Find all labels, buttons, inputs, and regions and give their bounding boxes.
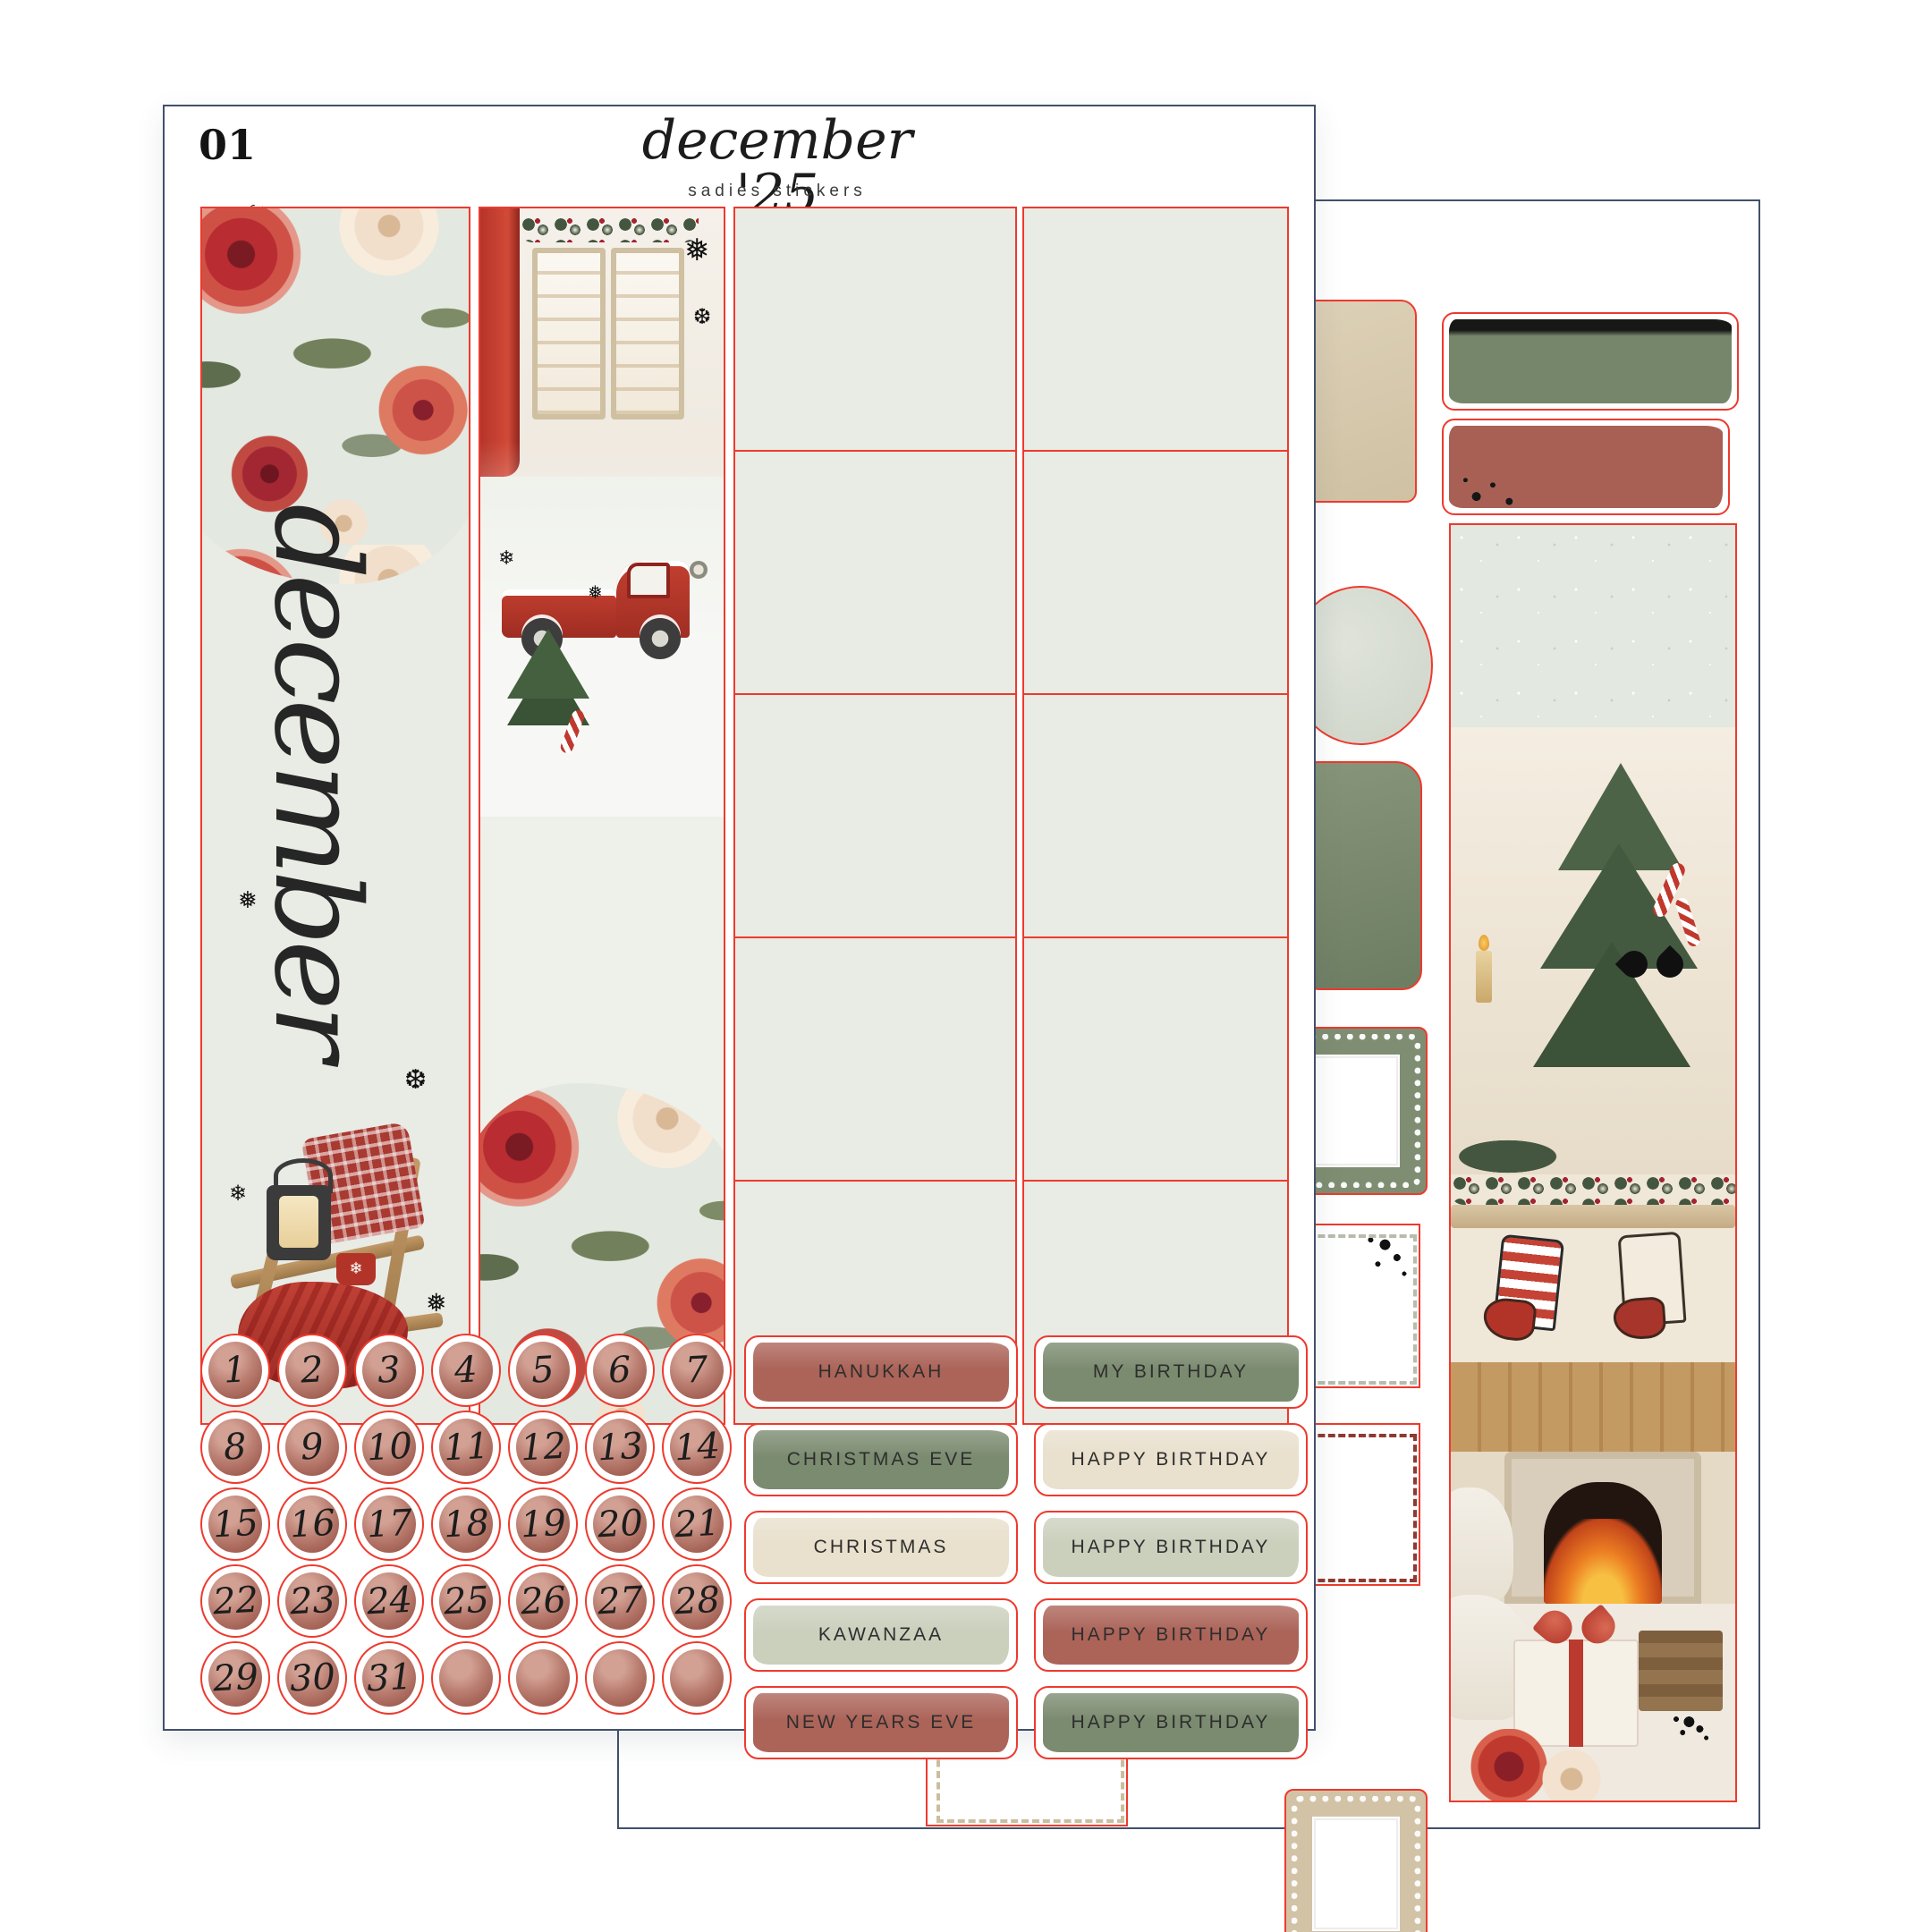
date-dot-sticker: 19 (508, 1487, 578, 1561)
date-dot-sticker: 25 (431, 1564, 501, 1638)
date-number: 29 (212, 1659, 259, 1698)
snowflake-icon: ❆ (404, 1067, 427, 1094)
date-dot-paint: 3 (362, 1342, 416, 1399)
date-dot-paint: 2 (285, 1342, 339, 1399)
washi-mantel-scene (1451, 1174, 1735, 1452)
date-dot-sticker: 15 (200, 1487, 270, 1561)
label-paint: HANUKKAH (753, 1343, 1009, 1402)
date-dot-paint: 20 (593, 1496, 647, 1553)
date-dot-paint: 30 (285, 1649, 339, 1707)
label-sticker: CHRISTMAS (744, 1511, 1018, 1584)
cream-rose-illustration (1531, 1743, 1612, 1802)
date-dot-sticker: 26 (508, 1564, 578, 1638)
green-brush-swatch-sticker (1442, 312, 1739, 411)
date-dot-paint: 6 (593, 1342, 647, 1399)
label-sticker: HAPPY BIRTHDAY (1034, 1598, 1308, 1672)
brown-gift-illustration (1639, 1631, 1723, 1711)
date-number: 31 (366, 1659, 413, 1698)
label-text: CHRISTMAS (814, 1537, 949, 1558)
date-number: 15 (212, 1505, 259, 1544)
sketch-border (1308, 1234, 1417, 1385)
tan-lace-frame-sticker (1284, 1789, 1428, 1932)
date-dot-paint: 29 (208, 1649, 262, 1707)
label-sticker: KAWANZAA (744, 1598, 1018, 1672)
date-dot-sticker: 17 (354, 1487, 424, 1561)
date-number: 4 (453, 1352, 479, 1388)
box-cut-lines (1024, 208, 1287, 1423)
date-dot-paint (516, 1649, 570, 1707)
date-dot-sticker: 6 (585, 1334, 655, 1407)
lace-frame-inner (1289, 1793, 1423, 1932)
date-dot-paint (593, 1649, 647, 1707)
date-number: 10 (366, 1428, 413, 1467)
date-dot-paint: 22 (208, 1572, 262, 1630)
shop-window (611, 248, 684, 419)
label-sticker: CHRISTMAS EVE (744, 1423, 1018, 1496)
date-dot-paint: 19 (516, 1496, 570, 1553)
date-dot-paint: 17 (362, 1496, 416, 1553)
rose-paint (1449, 426, 1723, 508)
date-number: 1 (223, 1352, 248, 1388)
date-dot-sticker: 9 (277, 1411, 347, 1484)
date-dot-sticker: 13 (585, 1411, 655, 1484)
label-sticker: HAPPY BIRTHDAY (1034, 1423, 1308, 1496)
snowflake-icon: ❅ (588, 584, 603, 602)
date-dot-sticker: 8 (200, 1411, 270, 1484)
date-number: 27 (597, 1582, 644, 1621)
date-number: 3 (377, 1352, 402, 1388)
stocking-sketch-illustration (1618, 1232, 1687, 1327)
candle-flame (1479, 935, 1489, 951)
sticker-kit-product-image: 01 B6 ESS. december '25 sadies stickers … (0, 0, 1932, 1932)
label-paint: CHRISTMAS EVE (753, 1430, 1009, 1489)
date-dots-grid: 1 2 3 4 (200, 1334, 728, 1713)
stocking-toe (1481, 1296, 1537, 1343)
date-number: 19 (520, 1505, 567, 1544)
sticker-sheet-front: 01 B6 ESS. december '25 sadies stickers … (163, 105, 1316, 1731)
date-dot-sticker: 16 (277, 1487, 347, 1561)
holiday-labels-column: HANUKKAH CHRISTMAS EVE CHRISTMAS (744, 1335, 1018, 1759)
date-dot-paint: 14 (670, 1419, 724, 1476)
candle-illustration (1476, 951, 1492, 1003)
washi-room-scene (1451, 727, 1735, 1174)
label-paint: KAWANZAA (753, 1606, 1009, 1665)
label-text: HAPPY BIRTHDAY (1072, 1712, 1271, 1733)
red-bow-illustration (1538, 1611, 1615, 1647)
date-dot-sticker: 28 (662, 1564, 732, 1638)
gift-ribbon (1569, 1640, 1583, 1747)
date-dot-sticker (508, 1641, 578, 1715)
label-paint: CHRISTMAS (753, 1518, 1009, 1577)
label-paint: NEW YEARS EVE (753, 1693, 1009, 1752)
label-text: HAPPY BIRTHDAY (1072, 1537, 1271, 1558)
date-number: 6 (607, 1352, 632, 1388)
date-dot-paint: 13 (593, 1419, 647, 1476)
date-number: 14 (674, 1428, 721, 1467)
date-number: 20 (597, 1505, 644, 1544)
date-dot-sticker: 31 (354, 1641, 424, 1715)
date-dot-paint: 23 (285, 1572, 339, 1630)
date-number: 5 (530, 1352, 555, 1388)
date-number: 22 (212, 1582, 259, 1621)
garland-illustration (1451, 1174, 1735, 1205)
date-dot-paint: 7 (670, 1342, 724, 1399)
label-paint: HAPPY BIRTHDAY (1043, 1430, 1299, 1489)
date-number: 30 (289, 1659, 336, 1698)
date-dot-sticker: 22 (200, 1564, 270, 1638)
date-dot-paint: 26 (516, 1572, 570, 1630)
label-text: NEW YEARS EVE (786, 1712, 977, 1733)
label-text: HAPPY BIRTHDAY (1072, 1624, 1271, 1646)
date-dot-paint: 12 (516, 1419, 570, 1476)
date-dot-paint: 4 (439, 1342, 493, 1399)
snowflake-icon: ❅ (238, 888, 258, 911)
label-text: HANUKKAH (818, 1361, 945, 1383)
date-dot-sticker: 27 (585, 1564, 655, 1638)
label-text: KAWANZAA (818, 1624, 944, 1646)
date-number: 26 (520, 1582, 567, 1621)
truck-wheel (640, 618, 681, 659)
date-dot-sticker: 24 (354, 1564, 424, 1638)
date-number: 2 (300, 1352, 325, 1388)
date-dot-paint: 1 (208, 1342, 262, 1399)
shop-window (532, 248, 606, 419)
label-paint: HAPPY BIRTHDAY (1043, 1518, 1299, 1577)
date-dot-paint: 15 (208, 1496, 262, 1553)
date-number: 17 (366, 1505, 413, 1544)
snowflake-icon: ❅ (426, 1291, 446, 1316)
date-number: 21 (674, 1505, 721, 1544)
label-text: CHRISTMAS EVE (787, 1449, 976, 1470)
date-number: 28 (674, 1582, 721, 1621)
date-dot-sticker: 10 (354, 1411, 424, 1484)
date-dot-sticker: 4 (431, 1334, 501, 1407)
date-number: 24 (366, 1582, 413, 1621)
date-dot-paint: 27 (593, 1572, 647, 1630)
full-box-panel-left (733, 207, 1017, 1425)
birthday-labels-column: MY BIRTHDAY HAPPY BIRTHDAY HAPPY BIRTHDA… (1034, 1335, 1308, 1759)
snowy-tree-illustration (507, 629, 589, 699)
month-hero-strip-sticker: december ❅ ❆ ❄ ❄ ❅ ❆ (200, 207, 470, 1425)
date-dot-paint: 24 (362, 1572, 416, 1630)
fire-flames (1544, 1519, 1662, 1604)
date-number: 9 (300, 1428, 325, 1465)
date-dot-sticker: 12 (508, 1411, 578, 1484)
date-dot-paint: 11 (439, 1419, 493, 1476)
red-mug-illustration: ❄ (336, 1253, 376, 1285)
date-dot-paint: 31 (362, 1649, 416, 1707)
date-dot-sticker: 2 (277, 1334, 347, 1407)
washi-fireplace-scene (1451, 1452, 1735, 1604)
garland-illustration (520, 216, 699, 242)
date-dot-sticker: 1 (200, 1334, 270, 1407)
date-dot-paint: 5 (516, 1342, 570, 1399)
label-sticker: HANUKKAH (744, 1335, 1018, 1409)
date-number: 8 (223, 1428, 248, 1465)
box-cut-lines (735, 208, 1015, 1423)
date-number: 23 (289, 1582, 336, 1621)
date-dot-sticker: 11 (431, 1411, 501, 1484)
date-dot-paint: 9 (285, 1419, 339, 1476)
date-dot-sticker (585, 1641, 655, 1715)
stocking-illustration (1493, 1234, 1564, 1332)
date-number: 7 (684, 1352, 709, 1388)
full-box-panel-right (1022, 207, 1289, 1425)
label-sticker: NEW YEARS EVE (744, 1686, 1018, 1759)
kit-title: december '25 (594, 114, 961, 221)
date-number: 18 (443, 1505, 490, 1544)
date-dot-paint: 16 (285, 1496, 339, 1553)
label-sticker: MY BIRTHDAY (1034, 1335, 1308, 1409)
rose-brush-swatch-sticker (1442, 419, 1730, 515)
label-paint: HAPPY BIRTHDAY (1043, 1606, 1299, 1665)
date-number: 12 (520, 1428, 567, 1467)
label-paint: HAPPY BIRTHDAY (1043, 1693, 1299, 1752)
date-dot-paint: 10 (362, 1419, 416, 1476)
lantern-glass (279, 1196, 318, 1248)
date-dot-paint (670, 1649, 724, 1707)
date-number: 25 (443, 1582, 490, 1621)
date-number: 11 (443, 1428, 490, 1467)
green-paint (1449, 319, 1732, 403)
label-text: MY BIRTHDAY (1093, 1361, 1249, 1383)
date-dot-sticker (431, 1641, 501, 1715)
label-sticker: HAPPY BIRTHDAY (1034, 1511, 1308, 1584)
date-dot-paint: 18 (439, 1496, 493, 1553)
date-dot-sticker: 20 (585, 1487, 655, 1561)
date-dot-paint: 21 (670, 1496, 724, 1553)
wood-floor (1451, 1362, 1735, 1452)
date-dot-sticker: 21 (662, 1487, 732, 1561)
mantel-shelf (1451, 1205, 1735, 1228)
date-dot-sticker: 3 (354, 1334, 424, 1407)
date-dot-sticker: 29 (200, 1641, 270, 1715)
date-dot-sticker: 5 (508, 1334, 578, 1407)
date-dot-sticker: 30 (277, 1641, 347, 1715)
sketch-border (1308, 1434, 1417, 1582)
firebox-opening (1544, 1482, 1662, 1604)
label-paint: MY BIRTHDAY (1043, 1343, 1299, 1402)
date-dot-sticker (662, 1641, 732, 1715)
truck-washi-strip-sticker: ❅ ❆ ❄ ❅ (479, 207, 725, 1425)
truck-headlight (690, 561, 708, 579)
washi-floral-band (1451, 525, 1735, 727)
date-dot-sticker: 7 (662, 1334, 732, 1407)
paint-splatter (1612, 1711, 1719, 1801)
snowflake-icon: ❄ (498, 548, 514, 568)
red-drape (480, 208, 520, 477)
brand-name: sadies stickers (594, 182, 961, 201)
date-number: 16 (289, 1505, 336, 1544)
date-dot-paint: 25 (439, 1572, 493, 1630)
washi-gift-scene (1451, 1604, 1735, 1802)
label-text: HAPPY BIRTHDAY (1072, 1449, 1271, 1470)
black-bow-illustration (1621, 951, 1683, 981)
date-dot-sticker: 14 (662, 1411, 732, 1484)
snowflake-icon: ❅ (684, 235, 710, 266)
date-dot-paint: 28 (670, 1572, 724, 1630)
snowflake-icon: ❆ (693, 307, 711, 328)
date-dot-sticker: 18 (431, 1487, 501, 1561)
date-dot-sticker: 23 (277, 1564, 347, 1638)
stocking-toe (1613, 1296, 1667, 1341)
sheet-number: 01 (199, 121, 256, 169)
date-number: 13 (597, 1428, 644, 1467)
date-dot-paint: 8 (208, 1419, 262, 1476)
date-dot-paint (439, 1649, 493, 1707)
fireplace-washi-strip-sticker (1449, 523, 1737, 1802)
truck-window (627, 563, 670, 598)
label-sticker: HAPPY BIRTHDAY (1034, 1686, 1308, 1759)
